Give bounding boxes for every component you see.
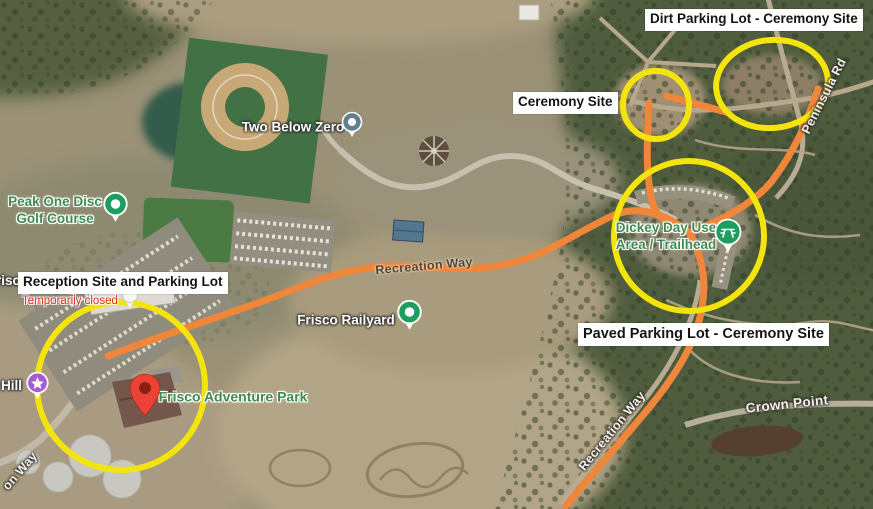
road-label-recreation-way-lower: Recreation Way bbox=[576, 389, 648, 474]
label-overlay: risco Dirt Parking Lot - Ceremony Site C… bbox=[0, 0, 873, 509]
poi-label-two-below-zero: Two Below Zero bbox=[242, 120, 345, 135]
callout-paved-parking: Paved Parking Lot - Ceremony Site bbox=[578, 323, 829, 346]
road-label-recreation-way-mid: Recreation Way bbox=[375, 255, 473, 277]
frisco-railyard-pin-icon[interactable] bbox=[396, 299, 423, 331]
callout-ceremony-site: Ceremony Site bbox=[513, 92, 618, 114]
road-label-on-way: on Way bbox=[0, 449, 40, 493]
annotated-satellite-map: risco Dirt Parking Lot - Ceremony Site C… bbox=[0, 0, 873, 509]
poi-label-adventure-park: Frisco Adventure Park bbox=[159, 388, 308, 406]
peak-one-park-pin-icon[interactable] bbox=[102, 191, 129, 223]
callout-dirt-parking: Dirt Parking Lot - Ceremony Site bbox=[645, 9, 863, 31]
poi-label-dickey: Dickey Day Use Area / Trailhead bbox=[616, 220, 717, 254]
poi-label-frisco-railyard: Frisco Railyard bbox=[297, 313, 395, 328]
status-temporarily-closed: Temporarily closed bbox=[22, 295, 118, 307]
road-label-crown-point: Crown Point bbox=[745, 392, 829, 416]
poi-label-hill: Hill bbox=[1, 378, 22, 393]
road-label-peninsula-rd: Peninsula Rd bbox=[799, 56, 849, 136]
callout-reception-site: Reception Site and Parking Lot bbox=[18, 272, 228, 294]
dickey-picnic-pin-icon[interactable] bbox=[713, 218, 743, 253]
hill-attraction-pin-icon[interactable] bbox=[25, 371, 50, 400]
two-below-zero-pin-icon[interactable] bbox=[341, 111, 363, 138]
adventure-park-red-pin-icon[interactable] bbox=[128, 373, 162, 417]
poi-label-peak-one: Peak One Disc Golf Course bbox=[8, 194, 102, 228]
